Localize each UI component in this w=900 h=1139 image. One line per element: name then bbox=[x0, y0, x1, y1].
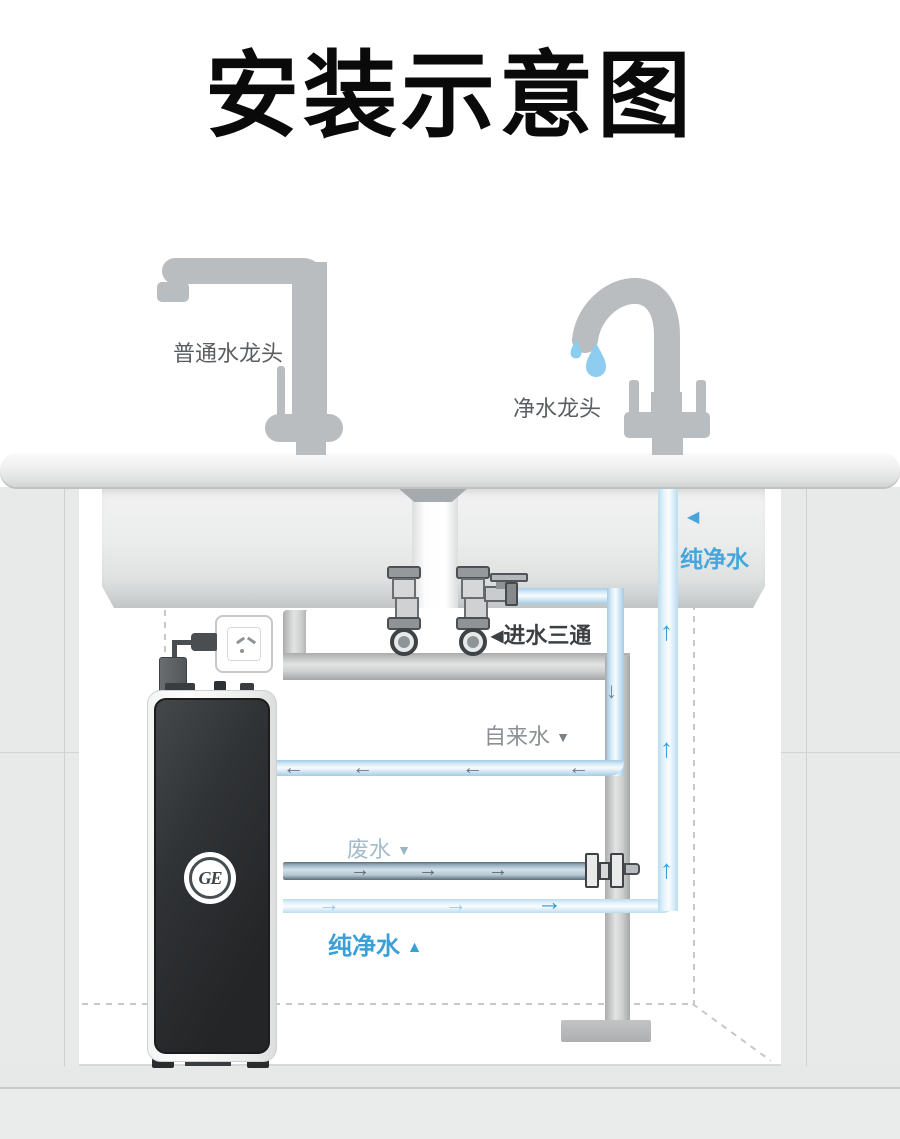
down-triangle-icon: ▼ bbox=[397, 842, 411, 858]
installation-diagram: ◀ 纯净水 ← ← ← ← ↓ → → → ↑ ↑ ↑ → → → ◀进水三通 bbox=[0, 0, 900, 1139]
drain-saddle-bolt bbox=[599, 862, 610, 880]
valve-fitting-hole bbox=[467, 636, 479, 648]
flow-arrow-up-icon: ↑ bbox=[660, 618, 673, 644]
flow-arrow-right-icon: → bbox=[537, 890, 562, 915]
flow-arrow-down-icon: ↓ bbox=[606, 680, 617, 702]
drain-saddle-stub bbox=[624, 863, 640, 875]
cabinet-right-panel-line bbox=[806, 487, 807, 1066]
ordinary-faucet-lever bbox=[277, 366, 285, 418]
flow-arrow-right-icon: → bbox=[445, 893, 467, 915]
floor-band bbox=[0, 1066, 900, 1087]
ordinary-faucet-stem bbox=[296, 438, 326, 455]
pure-faucet-stem bbox=[652, 436, 683, 455]
pure-water-bottom-label: 纯净水 ▲ bbox=[328, 926, 423, 961]
pure-water-top-label: 纯净水 bbox=[680, 540, 749, 574]
waste-water-label-text: 废水 bbox=[347, 837, 391, 862]
ge-logo-text: GE bbox=[198, 868, 221, 889]
valve-body bbox=[392, 578, 416, 599]
tap-water-label: 自来水 ▼ bbox=[484, 719, 570, 751]
flow-arrow-right-icon: → bbox=[318, 893, 340, 915]
waste-water-label: 废水 ▼ bbox=[347, 832, 411, 864]
countertop bbox=[0, 453, 900, 487]
valve-fitting-hole bbox=[398, 636, 410, 648]
floor bbox=[0, 1089, 900, 1139]
flow-arrow-up-icon: ↑ bbox=[660, 856, 673, 882]
cabinet-left-panel-hline bbox=[0, 752, 79, 753]
inlet-tee-label: ◀进水三通 bbox=[491, 618, 591, 650]
sink-drain-channel bbox=[412, 487, 458, 608]
flow-arrow-left-icon: ← bbox=[283, 757, 304, 778]
pure-water-pipe-horizontal bbox=[283, 899, 676, 913]
pure-faucet-handle-left bbox=[629, 380, 639, 414]
ordinary-faucet-body bbox=[292, 262, 327, 424]
flow-arrow-left-icon: ← bbox=[352, 757, 373, 778]
cabinet-right-panel-hline bbox=[781, 752, 900, 753]
tap-water-label-text: 自来水 bbox=[484, 724, 550, 749]
drain-horizontal-pipe bbox=[283, 653, 630, 680]
flow-arrow-right-icon: → bbox=[488, 860, 508, 880]
pure-faucet-label: 净水龙头 bbox=[513, 391, 601, 423]
pure-water-left-triangle-icon: ◀ bbox=[687, 510, 699, 526]
ge-logo-ring: GE bbox=[189, 857, 231, 899]
flow-arrow-up-icon: ↑ bbox=[660, 735, 673, 761]
cabinet-right-panel bbox=[781, 487, 900, 1066]
power-plug bbox=[191, 633, 217, 651]
drain-saddle-fitting bbox=[610, 853, 624, 888]
pure-faucet-base bbox=[624, 412, 710, 438]
up-triangle-icon: ▲ bbox=[407, 939, 423, 956]
down-triangle-icon: ▼ bbox=[556, 729, 570, 745]
cabinet-left-panel bbox=[0, 487, 79, 1066]
flow-arrow-right-icon: → bbox=[418, 860, 438, 880]
valve-body bbox=[461, 578, 485, 599]
ge-logo: GE bbox=[184, 852, 236, 904]
cabinet-left-panel-line bbox=[64, 487, 65, 1066]
ordinary-faucet-nozzle bbox=[157, 282, 189, 302]
inlet-tee-end-nut bbox=[505, 582, 518, 606]
left-triangle-icon: ◀ bbox=[491, 628, 503, 645]
drain-pipe-base bbox=[561, 1020, 651, 1042]
pure-water-pipe-vertical bbox=[658, 487, 678, 911]
inlet-tee-label-text: 进水三通 bbox=[503, 623, 591, 648]
ordinary-faucet-label: 普通水龙头 bbox=[173, 336, 283, 368]
outlet-hole-icon bbox=[240, 649, 244, 653]
flow-arrow-left-icon: ← bbox=[568, 757, 589, 778]
power-outlet-plate bbox=[227, 627, 261, 661]
pure-faucet-handle-right bbox=[696, 380, 706, 414]
flow-arrow-left-icon: ← bbox=[462, 757, 483, 778]
pure-water-bottom-label-text: 纯净水 bbox=[328, 933, 400, 960]
page-title: 安装示意图 bbox=[0, 44, 900, 147]
valve-body bbox=[395, 597, 419, 619]
drain-saddle-fitting bbox=[585, 853, 599, 888]
guide-dash-vertical bbox=[693, 604, 695, 1004]
inlet-tee-valve-handle bbox=[490, 573, 528, 582]
guide-dash-small bbox=[164, 610, 166, 658]
